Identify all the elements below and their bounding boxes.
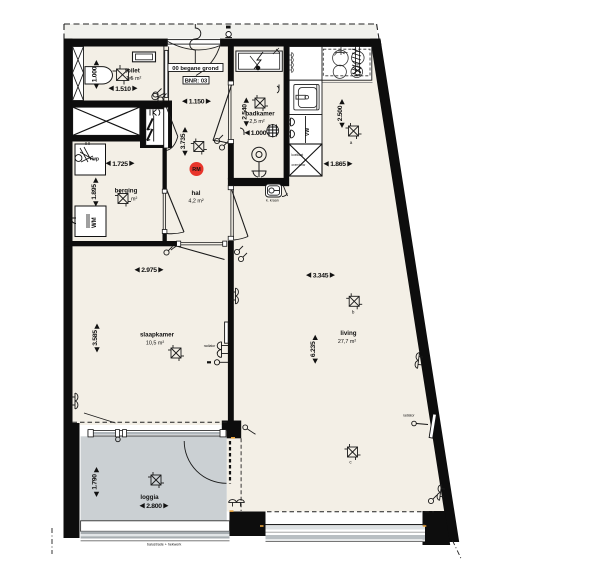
svg-text:1.000: 1.000 <box>251 130 267 137</box>
svg-text:badkamer: badkamer <box>245 111 275 118</box>
svg-text:slaapkamer: slaapkamer <box>140 332 175 339</box>
svg-text:b: b <box>352 310 355 315</box>
svg-text:radiator: radiator <box>403 414 415 418</box>
svg-text:koelkast: koelkast <box>292 153 304 157</box>
svg-text:living: living <box>340 330 356 337</box>
svg-text:1.895: 1.895 <box>91 184 98 200</box>
svg-text:1.000: 1.000 <box>91 66 98 82</box>
svg-text:6.235: 6.235 <box>310 341 317 357</box>
svg-text:2.500: 2.500 <box>337 105 344 121</box>
svg-text:1.790: 1.790 <box>92 474 99 490</box>
svg-text:BNR: 03: BNR: 03 <box>185 79 208 85</box>
svg-text:wp: wp <box>91 157 99 163</box>
svg-text:toilet: toilet <box>125 68 140 75</box>
svg-text:2.975: 2.975 <box>141 267 157 274</box>
svg-text:3.345: 3.345 <box>313 273 329 280</box>
svg-text:27,7 m²: 27,7 m² <box>338 339 356 345</box>
svg-text:hal: hal <box>192 190 201 197</box>
svg-text:1.510: 1.510 <box>115 86 131 93</box>
svg-text:VW: VW <box>305 128 311 136</box>
svg-text:oven+mw: oven+mw <box>292 163 306 167</box>
svg-text:RM: RM <box>192 167 201 173</box>
svg-text:3.735: 3.735 <box>180 133 187 149</box>
svg-text:balustrade + hekwerk: balustrade + hekwerk <box>147 543 181 547</box>
svg-text:a: a <box>350 140 353 145</box>
svg-text:2.800: 2.800 <box>146 503 162 510</box>
svg-text:3.585: 3.585 <box>92 330 99 346</box>
svg-text:1.725: 1.725 <box>112 161 128 168</box>
svg-text:WM: WM <box>92 217 98 228</box>
svg-text:m²: m² <box>131 197 137 203</box>
svg-text:10,5 m²: 10,5 m² <box>146 341 164 347</box>
svg-text:k. kraan: k. kraan <box>266 199 279 203</box>
svg-text:1.865: 1.865 <box>330 161 346 168</box>
svg-text:2,5 m²: 2,5 m² <box>249 119 264 125</box>
svg-text:00 begane grond: 00 begane grond <box>172 66 219 72</box>
svg-text:radiator: radiator <box>204 344 216 348</box>
svg-text:4,2 m²: 4,2 m² <box>188 199 203 205</box>
svg-text:loggia: loggia <box>140 494 159 501</box>
svg-text:1.150: 1.150 <box>189 99 205 106</box>
svg-text:1,5 m²: 1,5 m² <box>126 76 141 82</box>
